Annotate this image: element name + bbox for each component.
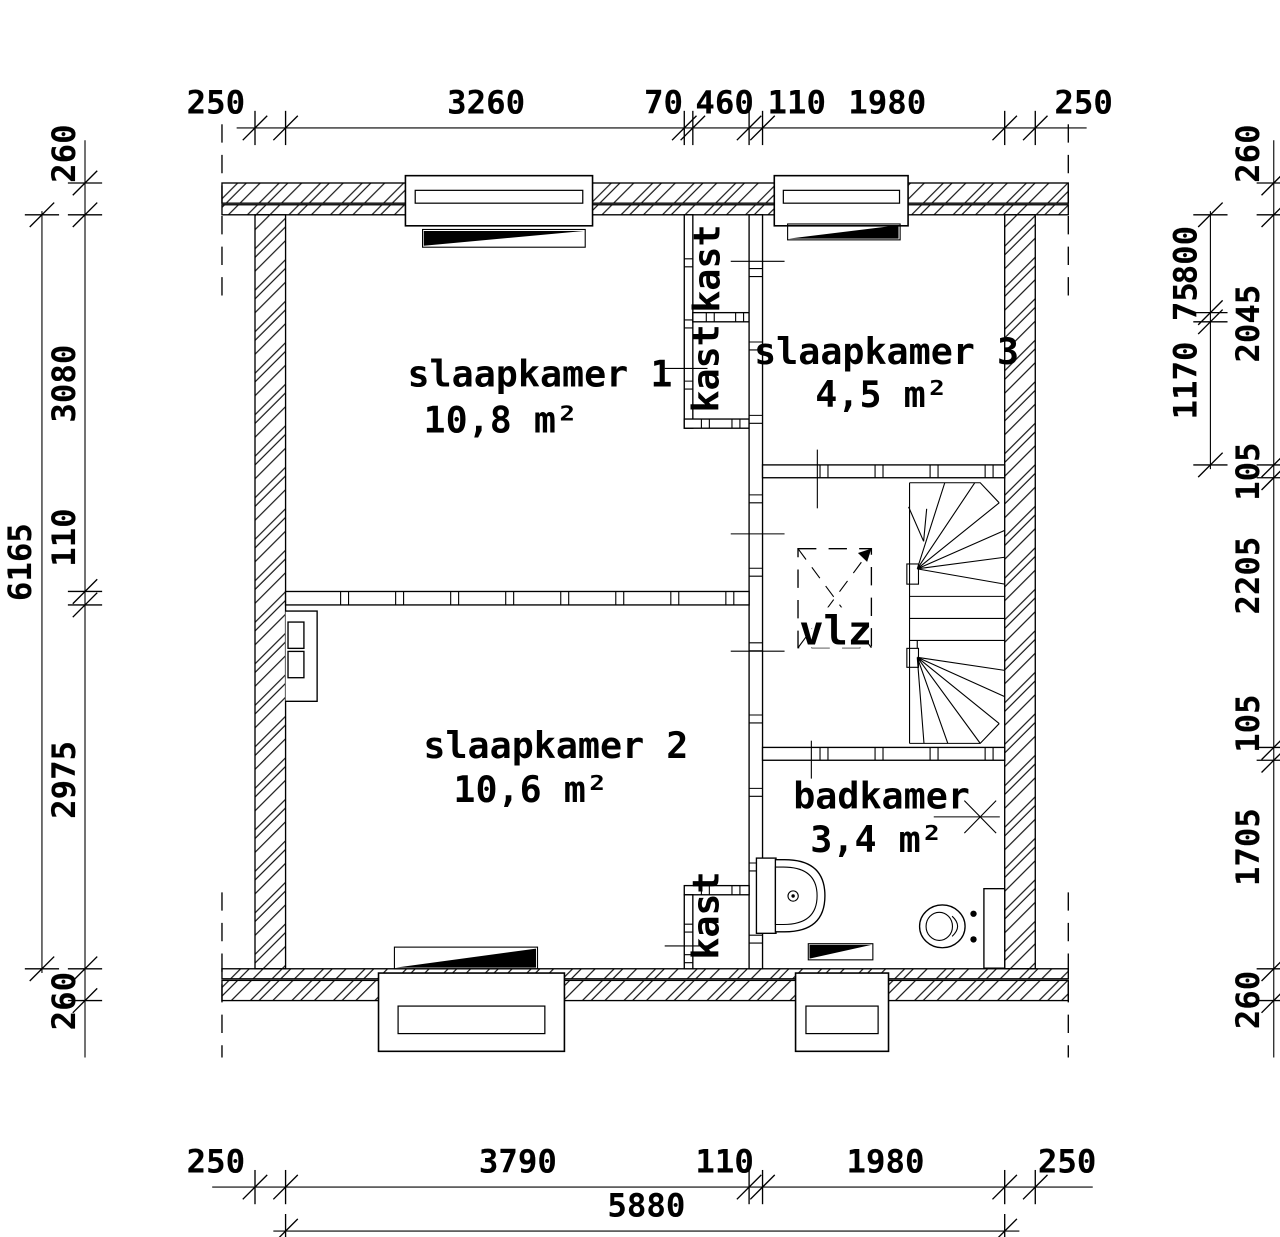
dim-left-total: 6165 (1, 203, 59, 981)
svg-text:1705: 1705 (1229, 808, 1267, 886)
svg-text:6165: 6165 (1, 523, 39, 601)
winder-treads-top (917, 483, 1004, 584)
svg-text:2045: 2045 (1229, 285, 1267, 363)
svg-text:110: 110 (45, 508, 83, 567)
room-label-slaapkamer1: slaapkamer 1 (407, 353, 672, 396)
svg-text:110: 110 (768, 83, 827, 121)
svg-text:3080: 3080 (45, 345, 83, 423)
radiator-slaapkamer1 (423, 229, 586, 247)
svg-text:105: 105 (1229, 694, 1267, 753)
dim-right-inner: 800 75 1170 (1167, 203, 1228, 478)
svg-text:2975: 2975 (45, 741, 83, 819)
wall-top-outer-leaf (222, 183, 1068, 203)
floor-plan-page: vlz (0, 0, 1280, 1237)
svg-text:250: 250 (1054, 83, 1113, 121)
svg-text:5880: 5880 (607, 1186, 685, 1224)
window-slaapkamer1 (405, 176, 592, 226)
dim-bottom-total: 5880 (273, 1186, 1019, 1237)
radiator-slaapkamer2 (394, 947, 537, 969)
svg-text:110: 110 (695, 1142, 754, 1180)
room-area-slaapkamer2: 10,6 m² (453, 768, 608, 811)
wall-left (255, 215, 286, 969)
vlz-hatch: vlz (798, 549, 872, 655)
svg-text:460: 460 (695, 83, 754, 121)
svg-text:260: 260 (1229, 124, 1267, 183)
dim-left-inner: 260 3080 110 2975 260 (45, 124, 102, 1057)
svg-text:250: 250 (187, 1142, 246, 1180)
staircase (907, 483, 1005, 744)
svg-text:1980: 1980 (846, 1142, 924, 1180)
window-slaapkamer3 (774, 176, 908, 226)
window-slaapkamer2 (379, 973, 565, 1051)
svg-text:105: 105 (1229, 442, 1267, 501)
sink-icon (756, 858, 824, 933)
closet1-label: kast (686, 224, 729, 312)
wall-top-inner-leaf (222, 205, 1068, 215)
window-badkamer (796, 973, 889, 1051)
svg-text:3790: 3790 (479, 1142, 557, 1180)
svg-text:260: 260 (1229, 971, 1267, 1030)
closet2-label: kast (685, 324, 728, 412)
room-label-slaapkamer2: slaapkamer 2 (423, 724, 688, 767)
svg-text:70: 70 (644, 83, 683, 121)
wall-bottom-outer-leaf (222, 980, 1068, 1000)
closet3-label: kast (685, 871, 728, 959)
svg-text:260: 260 (45, 124, 83, 183)
dimensions: 250 3260 70 460 110 1980 250 6165 (1, 83, 1280, 1237)
svg-text:800: 800 (1167, 226, 1205, 285)
stair-break-mark (909, 507, 927, 541)
winder-treads-bottom (917, 657, 1004, 743)
floor-plan-drawing: vlz (0, 0, 1280, 1237)
svg-text:3260: 3260 (447, 83, 525, 121)
radiator-badkamer (808, 944, 873, 960)
svg-text:250: 250 (187, 83, 246, 121)
svg-text:260: 260 (45, 972, 83, 1031)
dim-right-outer: 260 2045 105 2205 105 1705 260 (1229, 124, 1280, 1057)
svg-text:1980: 1980 (848, 83, 926, 121)
svg-text:1170: 1170 (1167, 342, 1205, 420)
vlz-arrow-icon (858, 549, 871, 562)
vlz-label: vlz (799, 607, 872, 654)
room-area-slaapkamer1: 10,8 m² (424, 398, 579, 441)
room-area-badkamer: 3,4 m² (810, 818, 942, 861)
chimney-breast (286, 611, 318, 701)
svg-text:250: 250 (1038, 1142, 1097, 1180)
svg-text:2205: 2205 (1229, 537, 1267, 615)
toilet-icon (920, 889, 1005, 968)
dim-top: 250 3260 70 460 110 1980 250 (187, 83, 1113, 145)
room-label-badkamer: badkamer (793, 775, 970, 818)
svg-text:75: 75 (1167, 282, 1205, 321)
wall-right (1005, 215, 1036, 969)
room-area-slaapkamer3: 4,5 m² (815, 373, 947, 416)
room-label-slaapkamer3: slaapkamer 3 (754, 330, 1019, 373)
wall-bottom-inner-leaf (222, 969, 1068, 979)
